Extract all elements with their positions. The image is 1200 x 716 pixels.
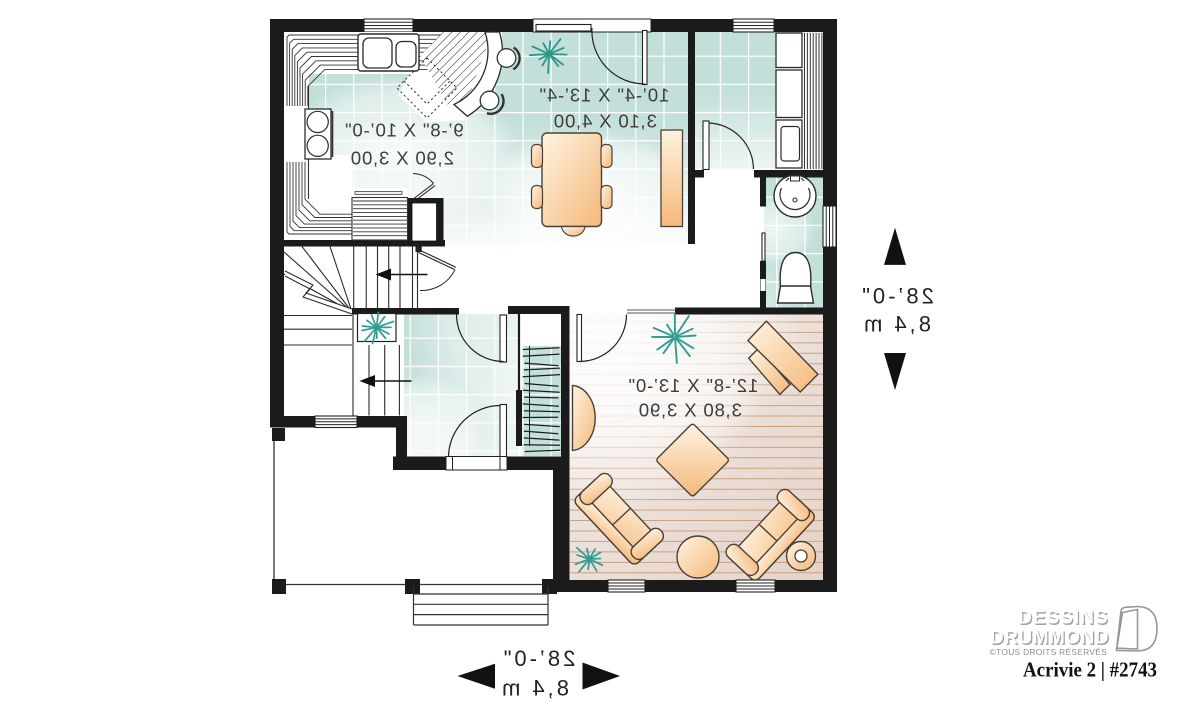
svg-text:8,4 m: 8,4 m <box>499 676 569 701</box>
svg-text:DESSINS: DESSINS <box>1018 608 1108 629</box>
svg-text:10’-4" X 13’-4": 10’-4" X 13’-4" <box>539 85 670 106</box>
svg-text:Acrivie 2 | #2743: Acrivie 2 | #2743 <box>1023 658 1157 682</box>
svg-text:9’-8" X 10’-0": 9’-8" X 10’-0" <box>344 120 464 141</box>
svg-text:8,4 m: 8,4 m <box>861 312 931 337</box>
svg-text:3,80 X 3,90: 3,80 X 3,90 <box>638 400 742 421</box>
svg-text:12’-8" X 13’-0": 12’-8" X 13’-0" <box>628 375 759 396</box>
svg-text:©TOUS DROITS RÉSERVÉS: ©TOUS DROITS RÉSERVÉS <box>990 647 1107 657</box>
svg-text:28’-0": 28’-0" <box>501 646 576 671</box>
svg-text:2,90 X 3,00: 2,90 X 3,00 <box>350 148 454 169</box>
svg-text:28’-0": 28’-0" <box>859 284 934 309</box>
svg-text:DRUMMOND: DRUMMOND <box>990 628 1109 649</box>
svg-text:3,10 X 4,00: 3,10 X 4,00 <box>553 111 657 132</box>
